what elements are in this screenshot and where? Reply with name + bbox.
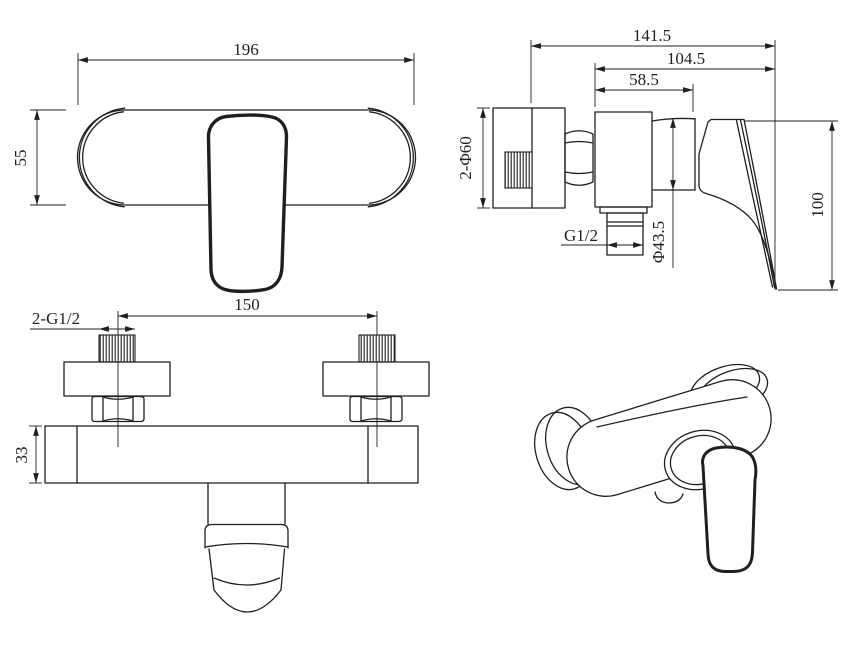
dim-side-valve-depth: 58.5 xyxy=(629,70,659,89)
dim-top-body-thickness: 33 xyxy=(12,447,31,464)
handle-front-outline xyxy=(208,115,286,291)
top-view: 150 2-G1/2 33 xyxy=(12,295,429,612)
dim-side-cartridge-dia: Φ43.5 xyxy=(649,221,668,263)
dim-side-handle-height: 100 xyxy=(808,192,827,218)
dim-top-inlet-spacing: 150 xyxy=(234,295,260,314)
dim-top-inlet-thread: 2-G1/2 xyxy=(32,309,80,328)
front-view: 196 55 xyxy=(11,40,416,291)
isometric-view xyxy=(526,356,781,572)
dim-side-flange: 2-Φ60 xyxy=(456,136,475,180)
dim-side-body-depth: 104.5 xyxy=(667,49,705,68)
dim-side-outlet-thread: G1/2 xyxy=(564,226,598,245)
dim-side-total-depth: 141.5 xyxy=(633,26,671,45)
technical-drawing-page: 196 55 141.5 104.5 58.5 2-Φ60 xyxy=(0,0,852,648)
dim-front-width: 196 xyxy=(233,40,259,59)
handle-iso-outline xyxy=(703,447,756,571)
dim-front-height: 55 xyxy=(11,150,30,167)
side-view: 141.5 104.5 58.5 2-Φ60 Φ43.5 G1/2 xyxy=(456,26,838,290)
technical-drawing-canvas: 196 55 141.5 104.5 58.5 2-Φ60 xyxy=(0,0,852,648)
